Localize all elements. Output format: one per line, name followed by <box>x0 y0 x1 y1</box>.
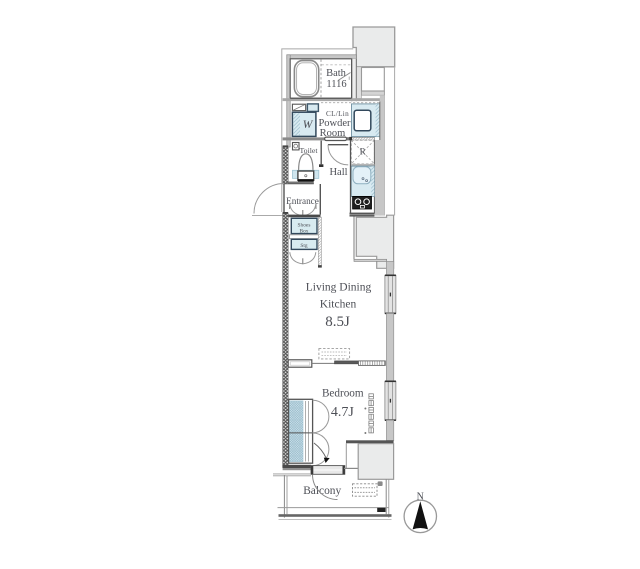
svg-text:Living Dining: Living Dining <box>306 282 372 294</box>
svg-text:N: N <box>417 492 424 503</box>
svg-text:Box: Box <box>300 228 309 234</box>
svg-text:CL/Lin: CL/Lin <box>326 110 349 118</box>
svg-text:Stg: Stg <box>300 243 307 249</box>
svg-text:Hall: Hall <box>329 167 347 178</box>
svg-text:1116: 1116 <box>326 79 346 90</box>
svg-text:R: R <box>360 146 367 156</box>
svg-text:Bath: Bath <box>326 68 347 79</box>
svg-text:W: W <box>303 119 314 131</box>
svg-text:Bedroom: Bedroom <box>322 388 364 400</box>
svg-text:Kitchen: Kitchen <box>320 298 357 310</box>
svg-text:4.7J: 4.7J <box>331 405 355 420</box>
svg-text:Toilet: Toilet <box>299 146 318 155</box>
svg-text:8.5J: 8.5J <box>325 314 350 330</box>
svg-text:Balcony: Balcony <box>303 485 341 497</box>
svg-text:Entrance: Entrance <box>286 196 319 206</box>
